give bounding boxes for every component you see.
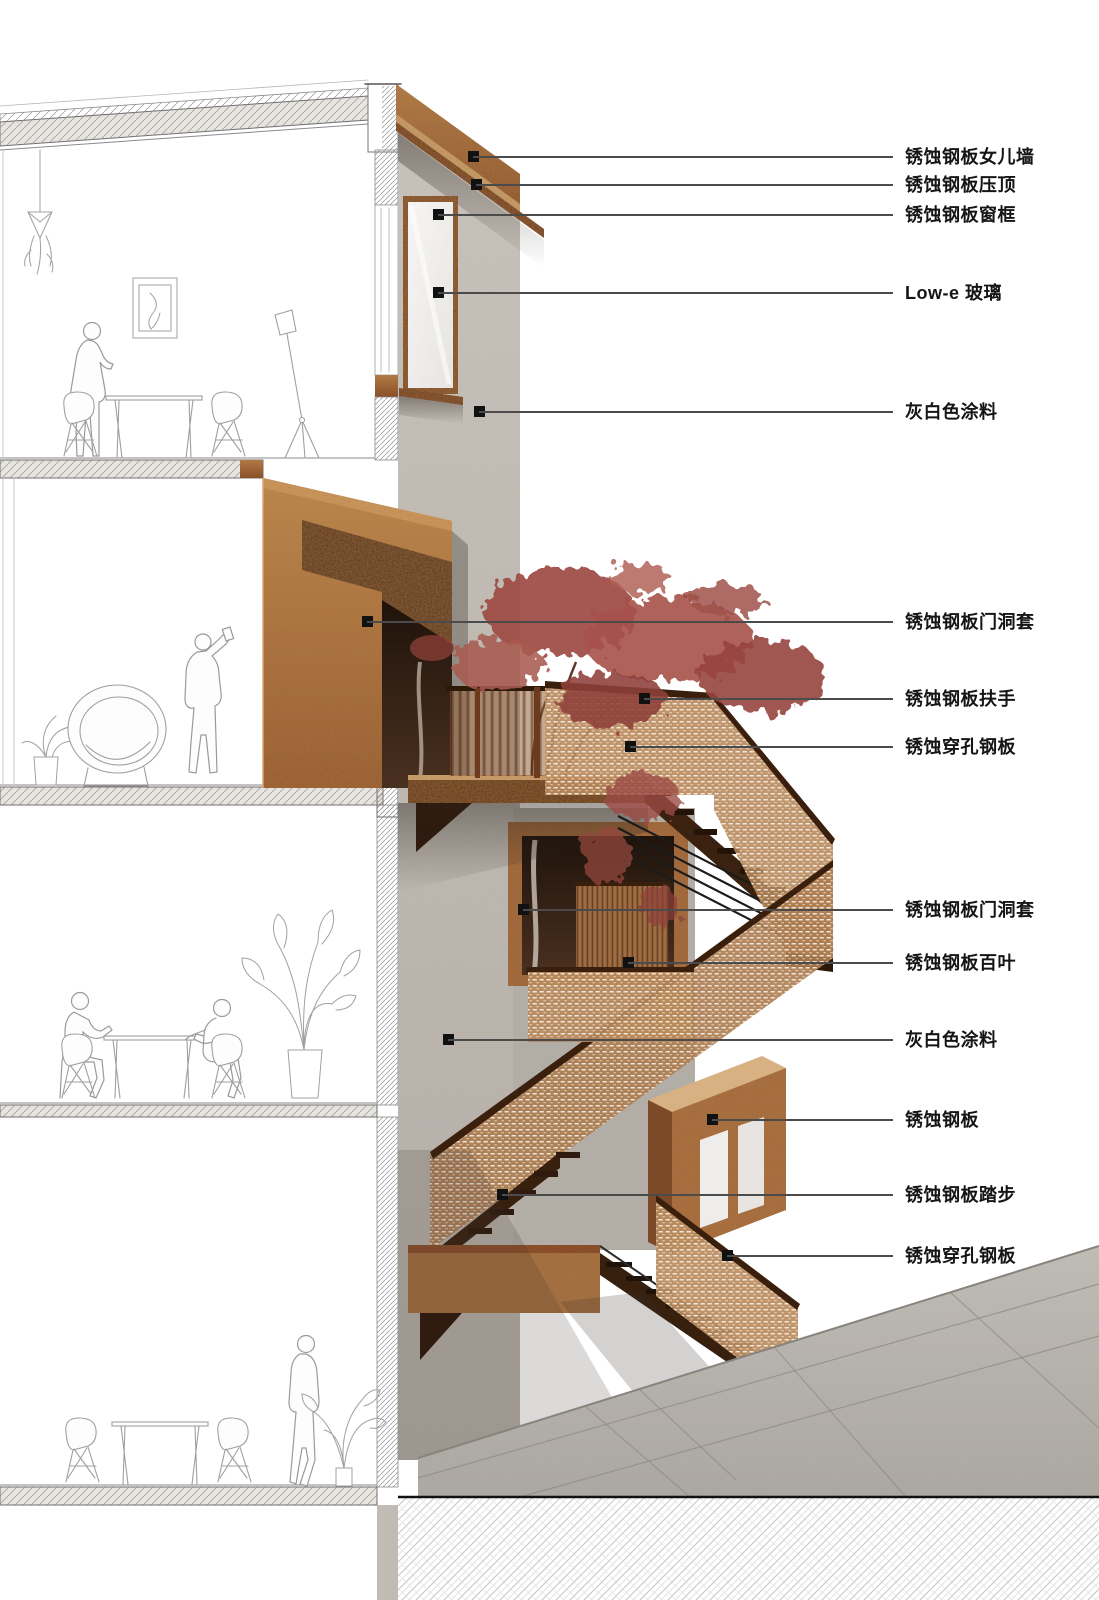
corten-door-surround-upper (263, 478, 468, 800)
leader-line (502, 1194, 893, 1196)
chair (62, 1034, 95, 1098)
annotation-label: 锈蚀钢板窗框 (905, 201, 1016, 229)
leader-line (479, 411, 893, 413)
annotation-label: Low-e 玻璃 (905, 279, 1002, 307)
annotation-label: 锈蚀钢板女儿墙 (905, 143, 1035, 171)
chair (218, 1418, 251, 1482)
leader-line (448, 1039, 893, 1041)
annotation-label: 灰白色涂料 (905, 1026, 998, 1054)
leader-line (727, 1255, 893, 1257)
lowe-window (399, 196, 463, 424)
dining-table (104, 1036, 200, 1098)
hanging-plant (25, 150, 53, 274)
leader-line (712, 1119, 893, 1121)
woman-figure (71, 323, 113, 457)
leader-line (644, 698, 893, 700)
dining-table (112, 1422, 208, 1484)
potted-plant-small (22, 716, 74, 785)
box-window (738, 1117, 764, 1214)
section-rendering (0, 0, 1099, 1600)
leader-line (523, 909, 893, 911)
leader-line (367, 621, 893, 623)
photographer-figure (185, 627, 234, 773)
leader-line (438, 292, 893, 294)
section-drawing (0, 80, 401, 1600)
earth-hatch (398, 1497, 1099, 1600)
chair (212, 1034, 245, 1098)
leader-line (473, 156, 893, 158)
picture-frame (133, 278, 177, 338)
leader-line (438, 214, 893, 216)
papasan-chair (68, 685, 166, 786)
dining-table (106, 396, 202, 458)
annotation-label: 锈蚀钢板踏步 (905, 1181, 1016, 1209)
annotation-label: 锈蚀钢板门洞套 (905, 896, 1035, 924)
leader-line (476, 184, 893, 186)
architectural-detail-sheet: 锈蚀钢板女儿墙 锈蚀钢板压顶 锈蚀钢板窗框 Low-e 玻璃 灰白色涂料 锈蚀钢… (0, 0, 1099, 1600)
annotation-label: 锈蚀钢板门洞套 (905, 608, 1035, 636)
annotation-label: 锈蚀穿孔钢板 (905, 1242, 1016, 1270)
roof-section (0, 80, 368, 150)
cut-wall (375, 150, 398, 1600)
annotation-label: 灰白色涂料 (905, 398, 998, 426)
box-window (700, 1130, 728, 1228)
tall-plant (242, 910, 360, 1098)
standing-man-figure (289, 1336, 319, 1487)
annotation-label: 锈蚀钢板压顶 (905, 171, 1016, 199)
parapet-section (365, 84, 401, 152)
balcony-slat-railing (446, 686, 548, 778)
chair (66, 1418, 99, 1482)
annotation-label: 锈蚀钢板扶手 (905, 685, 1016, 713)
perforated-guard-platform (526, 967, 694, 1042)
annotation-label: 锈蚀钢板百叶 (905, 949, 1016, 977)
chair (212, 392, 245, 456)
leader-line (630, 746, 893, 748)
leader-line (628, 962, 893, 964)
annotation-label: 锈蚀钢板 (905, 1106, 979, 1134)
annotation-label: 锈蚀穿孔钢板 (905, 733, 1016, 761)
floor-lamp (275, 310, 319, 458)
